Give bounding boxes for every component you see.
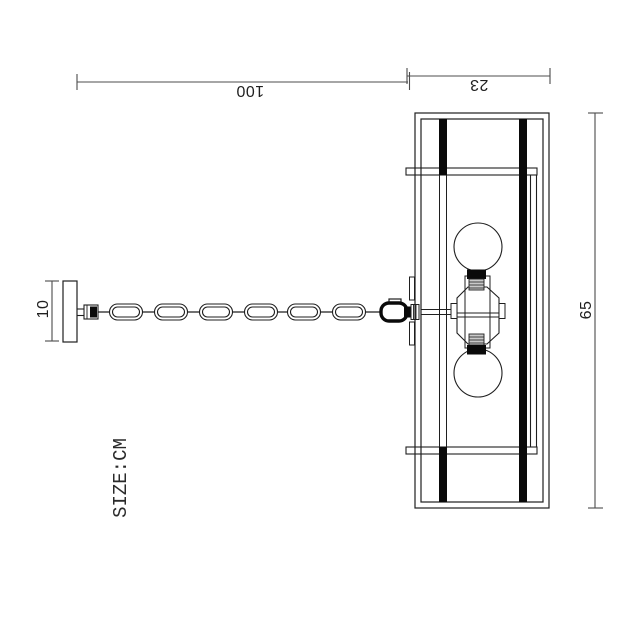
fixture-clevis — [404, 305, 419, 320]
ceiling-canopy — [63, 281, 98, 342]
hub-bump-left — [451, 304, 457, 319]
bulb-lower — [454, 349, 502, 397]
dim-label-canopy-width: 10 — [34, 279, 54, 339]
diagram-canvas — [0, 0, 623, 623]
chain-hook — [381, 299, 407, 321]
socket-upper — [467, 270, 486, 291]
dim-label-frame-length: 65 — [577, 280, 597, 340]
decor-bar-left — [439, 119, 447, 502]
lamp-dimension-diagram: 100 23 10 65 SIZE:CM — [0, 0, 623, 623]
bulb-upper — [454, 223, 502, 271]
socket-hub — [451, 270, 505, 355]
chain — [98, 277, 419, 345]
decor-bar-right — [519, 119, 527, 502]
unit-note: SIZE:CM — [110, 428, 132, 528]
socket-lower — [467, 334, 486, 355]
hub-bump-right — [499, 304, 505, 319]
dim-label-chain-length: 100 — [220, 80, 280, 100]
dim-label-frame-width: 23 — [449, 74, 509, 94]
